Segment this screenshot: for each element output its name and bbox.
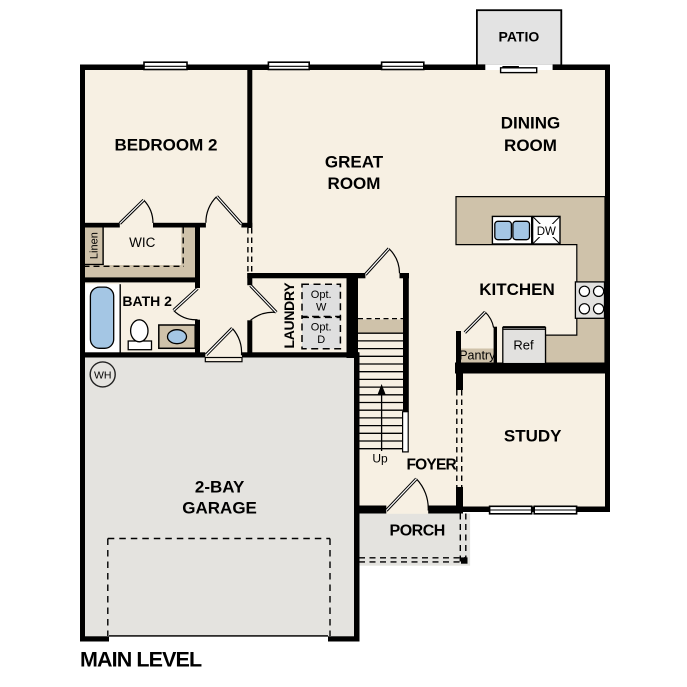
svg-text:ROOM: ROOM [504, 136, 557, 155]
svg-text:BATH 2: BATH 2 [122, 293, 172, 309]
svg-text:WIC: WIC [129, 235, 155, 250]
svg-text:Opt.: Opt. [311, 289, 332, 301]
svg-text:MAIN LEVEL: MAIN LEVEL [80, 648, 202, 672]
svg-text:ROOM: ROOM [328, 174, 381, 193]
svg-text:DW: DW [537, 226, 556, 238]
svg-text:Pantry: Pantry [459, 349, 496, 363]
svg-text:PORCH: PORCH [390, 523, 445, 540]
svg-text:GREAT: GREAT [325, 152, 384, 171]
svg-text:2-BAY: 2-BAY [195, 478, 245, 497]
svg-text:KITCHEN: KITCHEN [479, 280, 555, 299]
svg-text:FOYER: FOYER [406, 456, 456, 473]
svg-text:Up: Up [372, 452, 388, 466]
svg-text:PATIO: PATIO [499, 29, 540, 45]
svg-text:Ref: Ref [513, 338, 534, 353]
svg-text:DINING: DINING [501, 113, 561, 132]
svg-text:WH: WH [94, 369, 112, 381]
svg-text:Opt.: Opt. [311, 322, 332, 334]
svg-text:STUDY: STUDY [504, 426, 562, 445]
svg-text:LAUNDRY: LAUNDRY [281, 282, 297, 349]
svg-text:GARAGE: GARAGE [182, 499, 257, 518]
svg-text:W: W [316, 301, 327, 313]
svg-text:Linen: Linen [89, 232, 101, 259]
svg-text:BEDROOM 2: BEDROOM 2 [115, 135, 218, 154]
svg-text:D: D [317, 334, 325, 346]
